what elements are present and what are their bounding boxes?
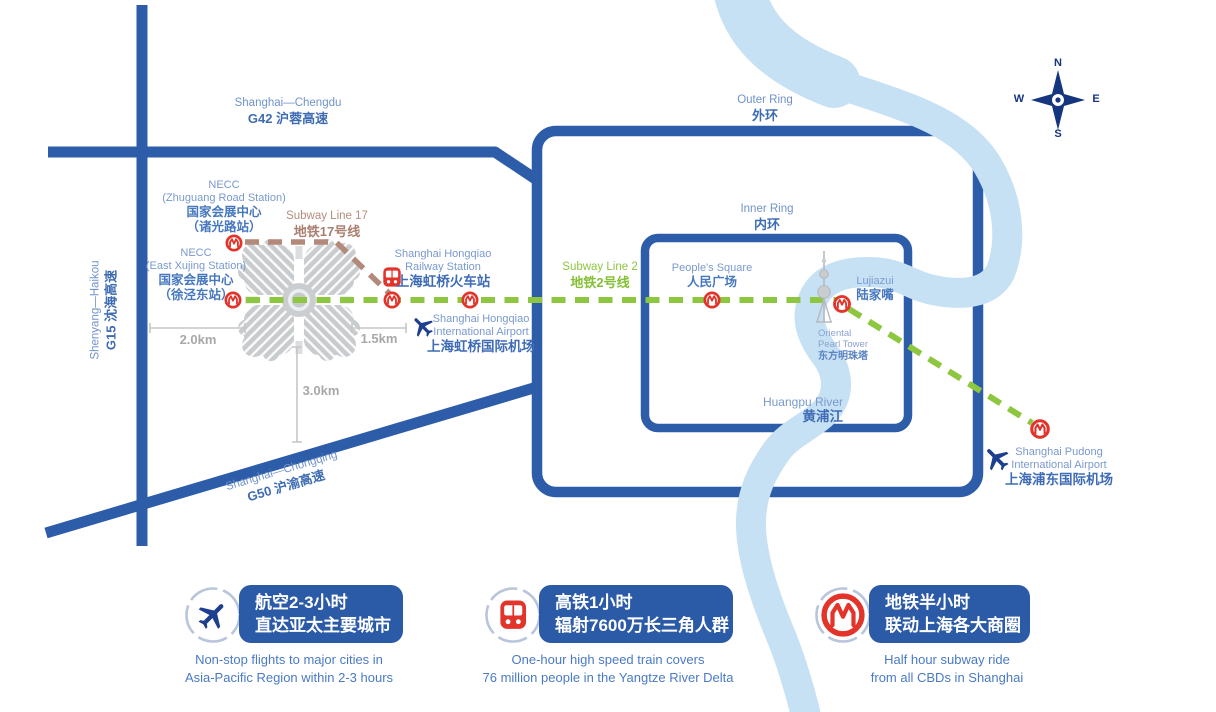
line-name-en: Subway Line 17 xyxy=(286,210,368,224)
train-icon xyxy=(485,587,541,643)
badge-zh-line2: 辐射7600万长三角人群 xyxy=(555,614,733,637)
ring-name-zh: 内环 xyxy=(740,217,793,232)
road-g42 xyxy=(48,152,537,180)
badge-zh-line2: 直达亚太主要城市 xyxy=(255,614,403,637)
metro-station-icon-lujiazui xyxy=(835,297,850,312)
compass-rose xyxy=(1031,70,1085,130)
badge-caption: Half hour subway ride from all CBDs in S… xyxy=(837,651,1057,687)
badge-train: 高铁1小时 辐射7600万长三角人群 One-hour high speed t… xyxy=(485,585,785,695)
label-hongqiao-railway: Shanghai Hongqiao Railway Station 上海虹桥火车… xyxy=(395,248,492,290)
map-canvas: Shanghai—Chengdu G42 沪蓉高速 Shenyang—Haiko… xyxy=(0,0,1216,712)
badge-pill: 地铁半小时 联动上海各大商圈 xyxy=(869,585,1030,643)
label-lujiazui: Lujiazui 陆家嘴 xyxy=(856,275,894,303)
metro-icon xyxy=(815,587,871,643)
line-name-zh: 地铁2号线 xyxy=(562,275,637,290)
badge-caption: Non-stop flights to major cities in Asia… xyxy=(169,651,409,687)
ring-name-en: Inner Ring xyxy=(740,203,793,217)
badge-zh-line1: 地铁半小时 xyxy=(885,591,1030,614)
plane-icon xyxy=(185,587,241,643)
compass-n: N xyxy=(1054,57,1062,69)
label-huangpu-river: Huangpu River 黄浦江 xyxy=(763,395,843,426)
metro-station-icon-hongqiao-rail xyxy=(385,293,399,307)
ruler-3km xyxy=(292,347,302,442)
label-inner-ring: Inner Ring 内环 xyxy=(740,203,793,232)
badge-zh-line1: 高铁1小时 xyxy=(555,591,733,614)
label-necc-zhuguang: NECC (Zhuguang Road Station) 国家会展中心 （诸光路… xyxy=(162,179,286,234)
badge-pill: 航空2-3小时 直达亚太主要城市 xyxy=(239,585,403,643)
road-name-zh: G15 沈海高速 xyxy=(103,260,118,359)
label-subway-line-17: Subway Line 17 地铁17号线 xyxy=(286,210,368,239)
label-pudong-airport: Shanghai Pudong International Airport 上海… xyxy=(1005,446,1113,488)
label-outer-ring: Outer Ring 外环 xyxy=(737,94,793,123)
ring-name-en: Outer Ring xyxy=(737,94,793,108)
compass-w: W xyxy=(1014,93,1024,105)
distance-label-2km: 2.0km xyxy=(180,332,217,347)
line-name-zh: 地铁17号线 xyxy=(286,224,368,239)
line-name-en: Subway Line 2 xyxy=(562,261,637,275)
label-oriental-pearl-tower: Oriental Pearl Tower 东方明珠塔 xyxy=(818,328,868,363)
label-subway-line-2: Subway Line 2 地铁2号线 xyxy=(562,261,637,290)
badge-flight: 航空2-3小时 直达亚太主要城市 Non-stop flights to maj… xyxy=(185,585,445,695)
compass-e: E xyxy=(1092,93,1099,105)
badge-zh-line2: 联动上海各大商圈 xyxy=(885,614,1030,637)
label-peoples-square: People's Square 人民广场 xyxy=(672,262,752,290)
road-g50 xyxy=(46,387,537,533)
ring-name-zh: 外环 xyxy=(737,108,793,123)
road-name-zh: G42 沪蓉高速 xyxy=(235,111,342,126)
label-g42: Shanghai—Chengdu G42 沪蓉高速 xyxy=(235,97,342,126)
metro-station-icon-peoples-square xyxy=(705,293,719,307)
subway-line-2 xyxy=(246,300,1032,423)
compass-s: S xyxy=(1054,128,1061,140)
badge-caption: One-hour high speed train covers 76 mill… xyxy=(478,651,738,687)
road-name-en: Shanghai—Chengdu xyxy=(235,97,342,111)
badge-metro: 地铁半小时 联动上海各大商圈 Half hour subway ride fro… xyxy=(815,585,1075,695)
label-g15: Shenyang—Haikou G15 沈海高速 xyxy=(90,260,119,359)
metro-station-icon-hongqiao-airport xyxy=(463,293,477,307)
metro-station-icon-pudong xyxy=(1032,421,1049,438)
badge-zh-line1: 航空2-3小时 xyxy=(255,591,403,614)
label-necc-xujing: NECC (East Xujing Station) 国家会展中心 （徐泾东站） xyxy=(146,247,246,302)
distance-label-1-5km: 1.5km xyxy=(361,331,398,346)
distance-label-3km: 3.0km xyxy=(303,383,340,398)
road-name-en: Shenyang—Haikou xyxy=(90,260,104,359)
label-hongqiao-airport: Shanghai Hongqiao International Airport … xyxy=(427,313,535,355)
badge-pill: 高铁1小时 辐射7600万长三角人群 xyxy=(539,585,733,643)
